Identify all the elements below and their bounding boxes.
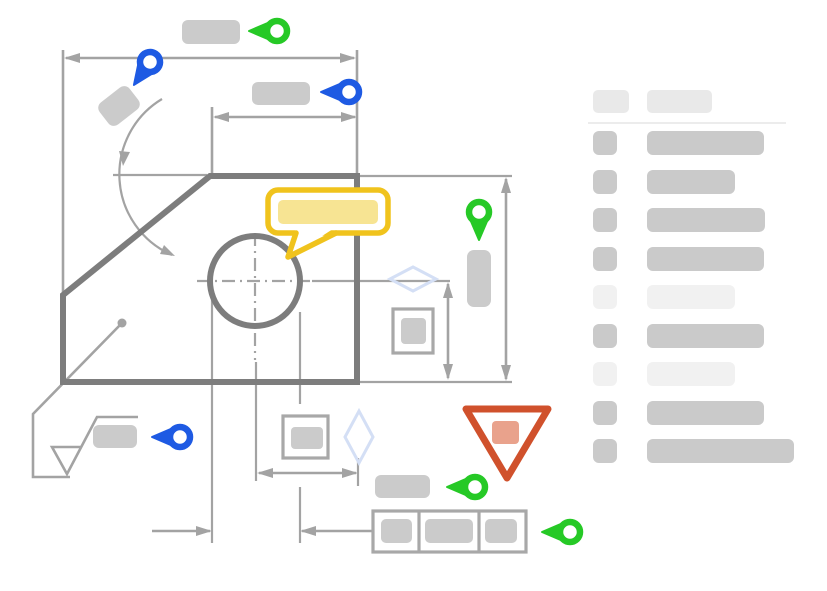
list-item-text-placeholder [647, 324, 764, 348]
panel-header-square [593, 90, 629, 113]
label-chip-top [182, 20, 240, 44]
list-item-text-placeholder [647, 247, 764, 271]
list-item-icon-placeholder [593, 285, 617, 309]
annotation-list-item-3[interactable] [593, 208, 798, 232]
annotation-list-item-2[interactable] [593, 170, 798, 194]
symbol-box-1 [283, 416, 328, 458]
annotation-panel [588, 90, 798, 463]
annotation-list-item-5[interactable] [593, 285, 798, 309]
annotation-list-item-8[interactable] [593, 401, 798, 425]
list-item-icon-placeholder [593, 208, 617, 232]
annotation-list-item-4[interactable] [593, 247, 798, 271]
pin-blue-top-right[interactable] [321, 82, 359, 102]
diamond-tall [345, 411, 373, 463]
pin-blue-top-left[interactable] [126, 48, 164, 91]
list-item-text-placeholder [647, 170, 735, 194]
pin-green-bottom[interactable] [447, 477, 485, 497]
symbol-box-2 [393, 309, 433, 353]
annotation-list-item-1[interactable] [593, 131, 798, 155]
list-item-icon-placeholder [593, 170, 617, 194]
list-item-text-placeholder [647, 208, 765, 232]
dimension-arrowheads [64, 53, 511, 536]
pin-green-middle[interactable] [469, 202, 489, 240]
panel-header [593, 90, 798, 113]
list-item-text-placeholder [647, 131, 764, 155]
feature-control-frame[interactable] [373, 511, 526, 552]
list-item-icon-placeholder [593, 324, 617, 348]
label-chip-vertical [467, 250, 491, 307]
list-item-text-placeholder [647, 439, 794, 463]
label-chip-datum [93, 425, 137, 448]
list-item-text-placeholder [647, 285, 735, 309]
list-item-icon-placeholder [593, 439, 617, 463]
pin-green-top[interactable] [249, 21, 287, 41]
list-item-icon-placeholder [593, 401, 617, 425]
panel-divider [588, 122, 786, 124]
warning-label-placeholder [492, 421, 519, 444]
angle-arc [119, 99, 175, 256]
label-chip-upper [252, 82, 310, 105]
pin-blue-bottom-left[interactable] [152, 427, 190, 447]
diamond-wide [390, 267, 436, 291]
pin-green-bottom-right[interactable] [542, 522, 580, 542]
annotation-list-item-9[interactable] [593, 439, 798, 463]
panel-header-bar [647, 90, 712, 113]
leader-line [33, 319, 127, 478]
list-item-icon-placeholder [593, 131, 617, 155]
label-chip-frame [375, 475, 430, 498]
list-item-icon-placeholder [593, 247, 617, 271]
list-item-icon-placeholder [593, 362, 617, 386]
comment-text-placeholder [278, 200, 378, 224]
annotation-list-item-6[interactable] [593, 324, 798, 348]
list-item-text-placeholder [647, 362, 735, 386]
annotation-list-item-7[interactable] [593, 362, 798, 386]
list-item-text-placeholder [647, 401, 764, 425]
warning-triangle[interactable] [466, 409, 548, 478]
